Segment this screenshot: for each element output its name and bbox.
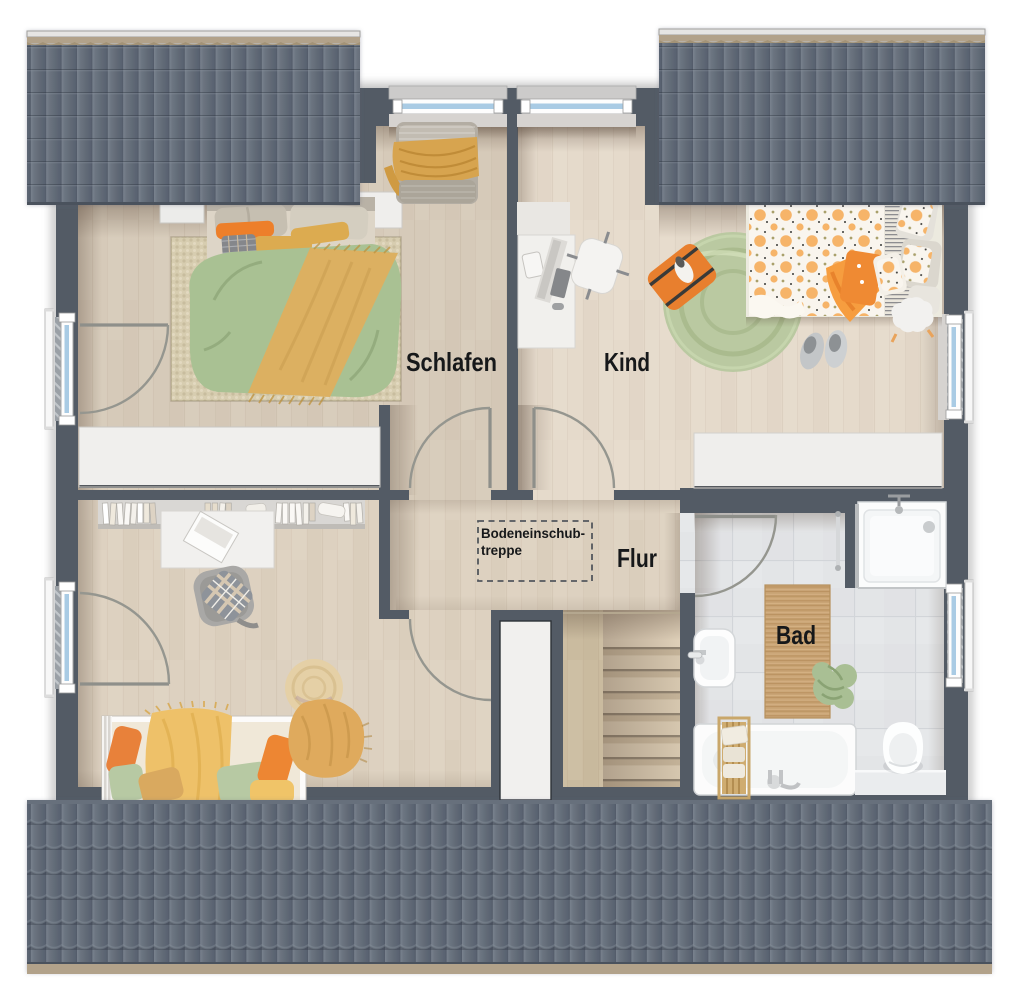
- svg-text:Flur: Flur: [617, 543, 657, 573]
- svg-text:Kind: Kind: [604, 347, 650, 377]
- svg-text:Schlafen: Schlafen: [406, 347, 497, 377]
- svg-text:Bad: Bad: [776, 620, 816, 650]
- svg-text:Bodeneinschub-: Bodeneinschub-: [481, 525, 585, 541]
- svg-text:treppe: treppe: [481, 542, 522, 558]
